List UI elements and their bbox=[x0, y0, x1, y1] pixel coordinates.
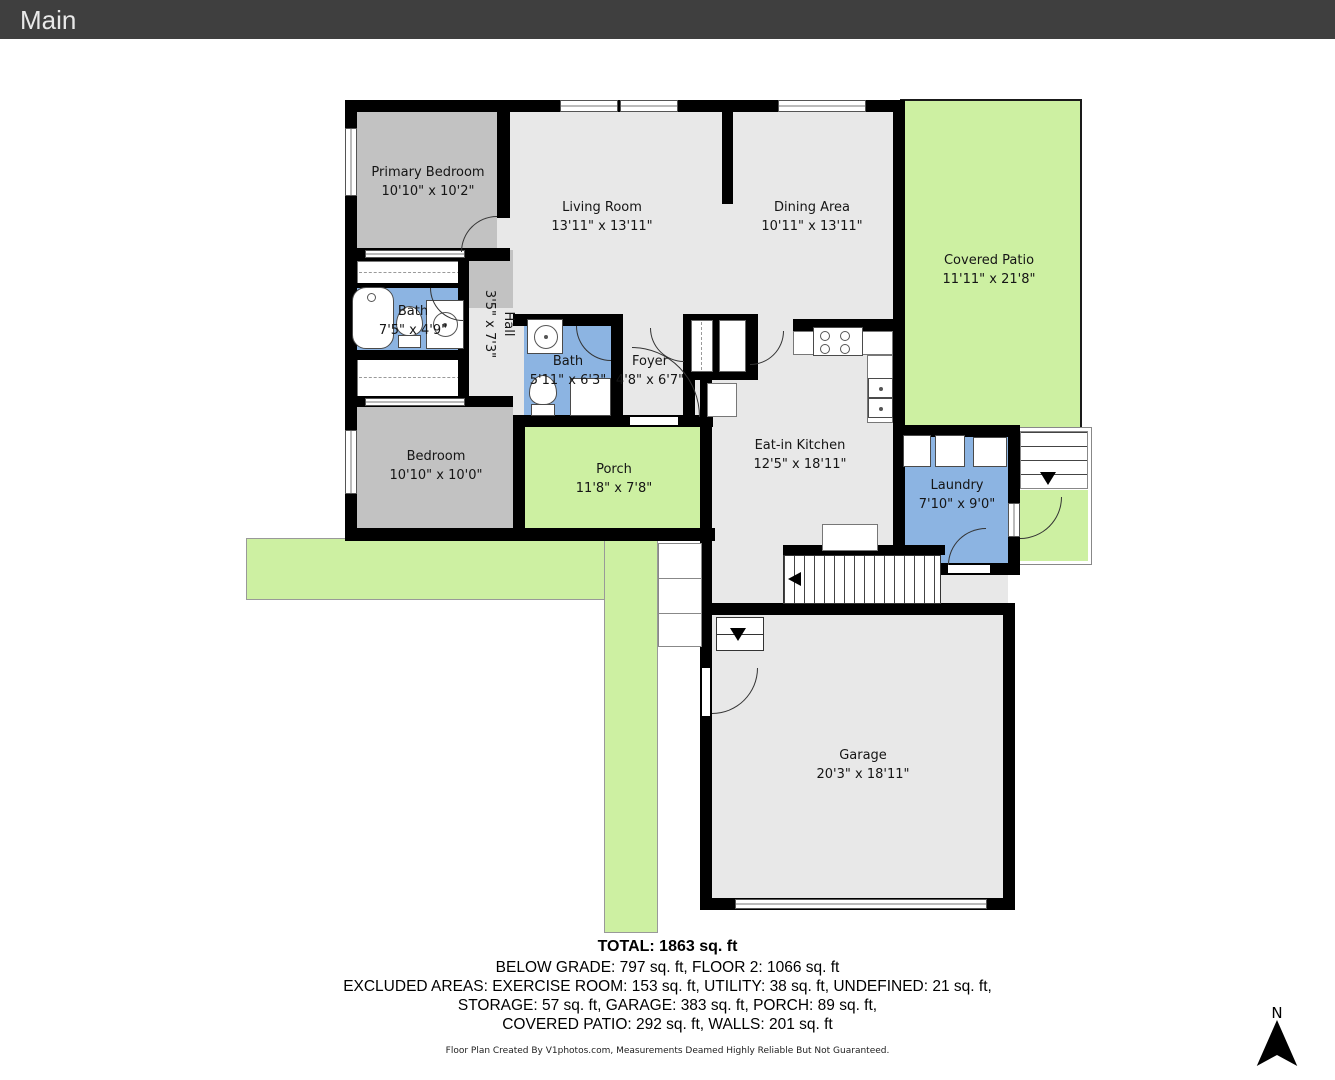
foyer-closet-a-rod bbox=[701, 322, 702, 370]
label-garage: Garage20'3" x 18'11" bbox=[817, 747, 910, 785]
page-title: Main bbox=[20, 2, 76, 38]
kitchen-pantry-box bbox=[707, 383, 737, 417]
wall-bath1-bottom bbox=[345, 350, 469, 360]
label-living-room: Living Room13'11" x 13'11" bbox=[551, 199, 652, 237]
fridge-lower bbox=[868, 398, 893, 418]
wall-garage-right bbox=[1003, 603, 1015, 910]
label-dining-area: Dining Area10'11" x 13'11" bbox=[761, 199, 862, 237]
interior-stairs bbox=[783, 555, 941, 604]
label-porch: Porch11'8" x 7'8" bbox=[576, 461, 652, 499]
dryer bbox=[973, 437, 1007, 467]
garage-steps-arrow-icon bbox=[730, 628, 746, 641]
laundry-exterior-door bbox=[1008, 503, 1020, 537]
closet-top-rod bbox=[359, 272, 465, 273]
foyer-closet-a bbox=[691, 320, 713, 372]
sink-bath2 bbox=[527, 319, 563, 354]
label-laundry: Laundry7'10" x 9'0" bbox=[919, 477, 995, 515]
summary-total: TOTAL: 1863 sq. ft bbox=[0, 938, 1335, 956]
wall-garage-top bbox=[700, 603, 1015, 615]
fridge-upper bbox=[868, 378, 893, 398]
yard-walk-vertical bbox=[604, 540, 658, 933]
window-primary-bedroom bbox=[345, 128, 357, 196]
label-hall: Hall3'5" x 7'3" bbox=[479, 290, 517, 358]
summary-grade: BELOW GRADE: 797 sq. ft, FLOOR 2: 1066 s… bbox=[0, 959, 1335, 977]
compass-n-label: N bbox=[1271, 1004, 1282, 1022]
closet-bottom-rod bbox=[359, 377, 465, 378]
label-bath-2: Bath5'11" x 6'3" bbox=[530, 353, 606, 391]
header-bar: Main bbox=[0, 0, 1335, 39]
stairs-down-arrow-icon bbox=[1040, 472, 1056, 485]
closet-top-slider bbox=[365, 250, 465, 258]
wall-primary-right bbox=[497, 100, 510, 218]
window-dining bbox=[778, 100, 866, 112]
wall-foyer-closet-left bbox=[683, 314, 691, 380]
label-covered-patio: Covered Patio11'11" x 21'8" bbox=[943, 252, 1036, 290]
stairs-left-arrow-icon bbox=[788, 572, 801, 586]
garage-side-door-gap bbox=[702, 668, 710, 716]
laundry-sink bbox=[903, 435, 931, 467]
garage-door bbox=[735, 899, 987, 909]
bathtub-drain bbox=[367, 293, 376, 302]
wall-garage-left bbox=[700, 603, 712, 910]
window-living-2 bbox=[620, 100, 678, 112]
label-foyer: Foyer4'8" x 6'7" bbox=[616, 353, 684, 391]
front-door-gap bbox=[630, 417, 678, 425]
foyer-closet-b bbox=[719, 320, 746, 372]
summary-excluded-3: COVERED PATIO: 292 sq. ft, WALLS: 201 sq… bbox=[0, 1016, 1335, 1034]
kitchen-counter-low bbox=[822, 524, 878, 551]
wall-kitchen-east bbox=[893, 332, 905, 437]
yard-walk-horizontal bbox=[246, 538, 606, 600]
summary-excluded-2: STORAGE: 57 sq. ft, GARAGE: 383 sq. ft, … bbox=[0, 997, 1335, 1015]
label-primary-bedroom: Primary Bedroom10'10" x 10'2" bbox=[371, 164, 484, 202]
exterior-steps-west bbox=[658, 543, 702, 647]
stove bbox=[813, 327, 863, 356]
wall-south-bedroom-porch bbox=[345, 528, 715, 541]
credit-line: Floor Plan Created By V1photos.com, Meas… bbox=[0, 1046, 1335, 1056]
window-living-1 bbox=[560, 100, 618, 112]
wall-laundry-east-upper bbox=[1008, 425, 1020, 503]
washer bbox=[935, 435, 965, 467]
wall-porch-west bbox=[513, 415, 525, 540]
window-bedroom bbox=[345, 430, 357, 494]
closet-bottom bbox=[357, 359, 467, 397]
closet-bottom-slider bbox=[365, 398, 465, 406]
label-bath-1: Bath7'5" x 4'9" bbox=[379, 303, 447, 341]
label-eat-in-kitchen: Eat-in Kitchen12'5" x 18'11" bbox=[754, 437, 847, 475]
summary-excluded-1: EXCLUDED AREAS: EXERCISE ROOM: 153 sq. f… bbox=[0, 978, 1335, 996]
wall-living-dining-stub bbox=[722, 108, 733, 204]
laundry-garage-door-gap bbox=[948, 565, 990, 573]
label-bedroom: Bedroom10'10" x 10'0" bbox=[390, 448, 483, 486]
wall-dining-east bbox=[893, 100, 905, 332]
